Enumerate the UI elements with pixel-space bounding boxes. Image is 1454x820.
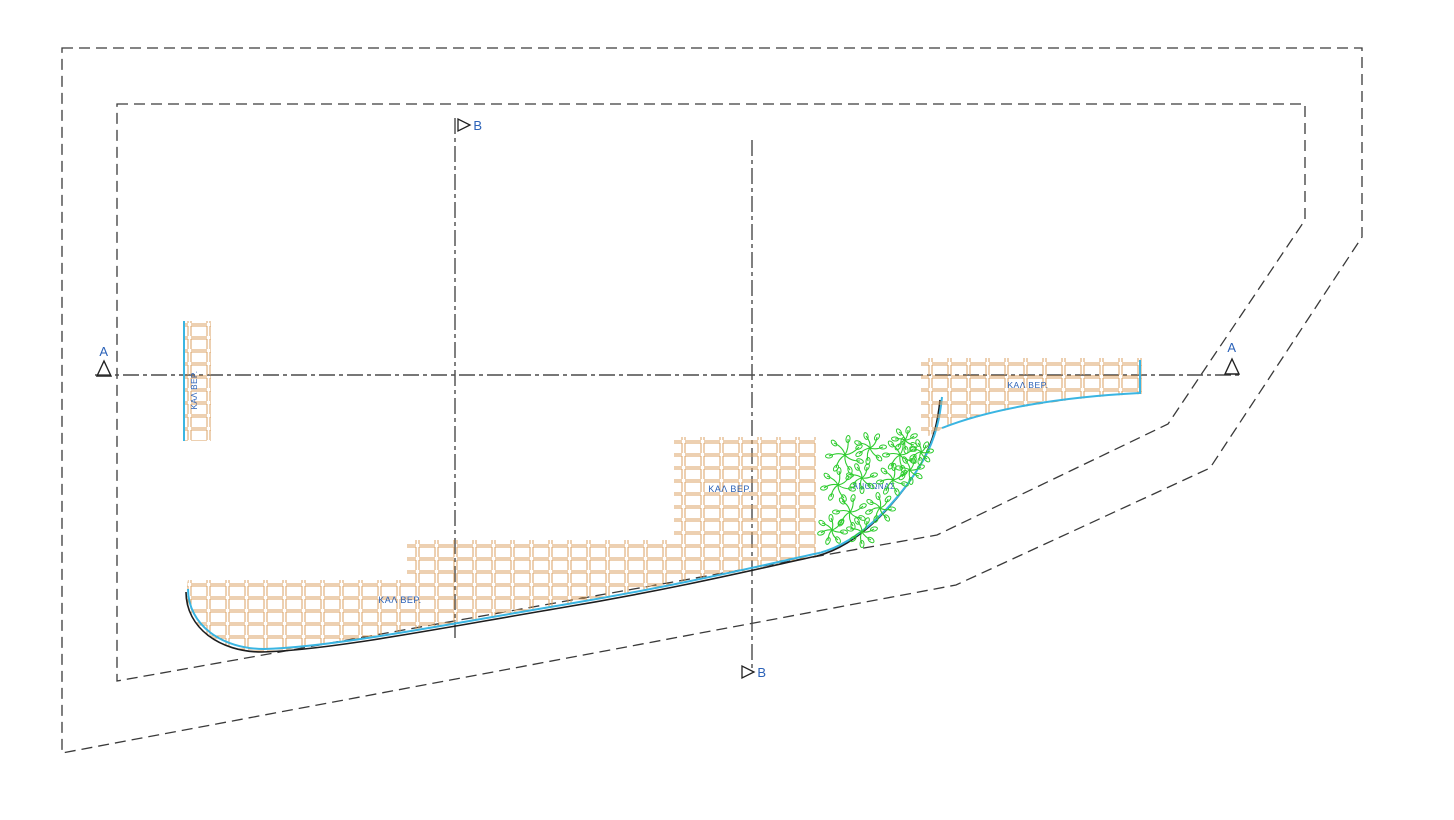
svg-text:ΚΑΛ ΒΕΡ.: ΚΑΛ ΒΕΡ. bbox=[1007, 380, 1048, 390]
svg-text:B: B bbox=[757, 665, 766, 680]
svg-text:ΚΑΛ ΒΕΡ.: ΚΑΛ ΒΕΡ. bbox=[378, 595, 421, 605]
svg-text:ΚΑΛ ΒΕΡ.: ΚΑΛ ΒΕΡ. bbox=[190, 370, 199, 409]
svg-text:A: A bbox=[1227, 340, 1236, 355]
svg-text:ΚΑΛ ΒΕΡ.: ΚΑΛ ΒΕΡ. bbox=[708, 484, 751, 494]
svg-text:B: B bbox=[473, 118, 482, 133]
svg-text:A: A bbox=[99, 344, 108, 359]
